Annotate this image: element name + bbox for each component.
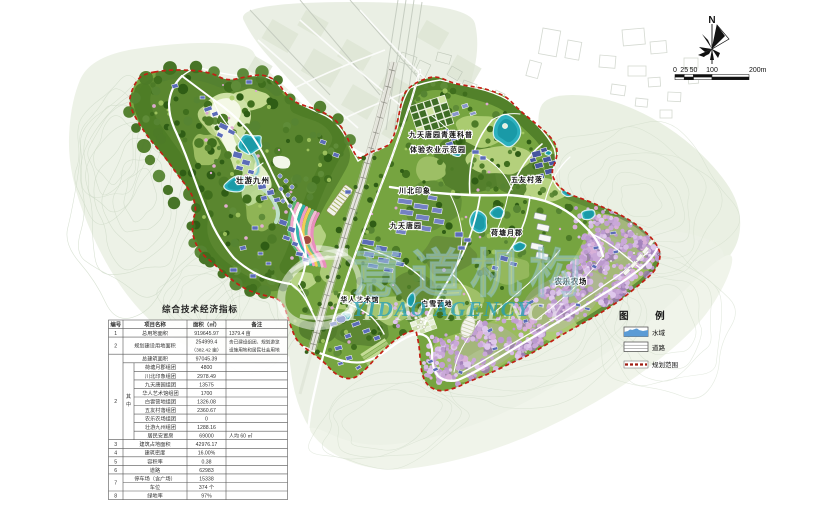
svg-text:道路: 道路 [652,343,666,352]
svg-text:13575: 13575 [199,382,214,388]
svg-text:97%: 97% [201,494,212,500]
svg-text:壮游九州: 壮游九州 [236,175,270,185]
svg-text:总用地面积: 总用地面积 [142,329,168,337]
svg-text:华人艺术馆组团: 华人艺术馆组团 [142,389,178,397]
svg-text:8: 8 [114,494,117,500]
svg-text:建筑密度: 建筑密度 [145,449,166,457]
svg-text:规划范围: 规划范围 [652,360,678,369]
svg-text:面积（㎡）: 面积（㎡） [193,321,220,329]
svg-text:6: 6 [114,468,117,474]
svg-text:意道机构: 意道机构 [352,246,588,304]
svg-text:42976.17: 42976.17 [196,442,218,448]
svg-text:25: 25 [680,67,688,74]
svg-text:车位: 车位 [150,483,160,491]
svg-text:4: 4 [114,451,117,457]
svg-text:五友村落组团: 五友村落组团 [145,406,176,414]
svg-text:3: 3 [114,442,117,448]
svg-text:（382.42 亩）: （382.42 亩） [191,347,221,354]
svg-text:总建筑面积: 总建筑面积 [142,355,168,363]
svg-text:九天唐园组团: 九天唐园组团 [145,380,176,388]
svg-text:道路: 道路 [150,466,161,474]
svg-text:水域: 水域 [652,328,666,337]
svg-text:5: 5 [114,459,117,465]
svg-text:含已建设组团、规划游览: 含已建设组团、规划游览 [229,339,280,346]
svg-text:16.00%: 16.00% [198,451,216,457]
svg-text:停车场（含广场）: 停车场（含广场） [134,474,176,482]
svg-text:五友村落: 五友村落 [511,175,543,184]
svg-text:1379.4 亩: 1379.4 亩 [229,330,251,337]
svg-text:2360.67: 2360.67 [197,408,216,414]
svg-text:绿地率: 绿地率 [147,492,163,500]
svg-text:50: 50 [690,67,698,74]
svg-text:0: 0 [205,417,208,423]
svg-text:1: 1 [114,331,117,337]
svg-text:壮游九州组团: 壮游九州组团 [145,423,176,431]
svg-text:4800: 4800 [201,365,213,371]
svg-text:其: 其 [126,394,131,400]
svg-text:编号: 编号 [110,321,121,329]
svg-text:2978.49: 2978.49 [197,374,216,380]
svg-text:备注: 备注 [250,321,262,329]
svg-text:农乐农场组团: 农乐农场组团 [145,415,176,423]
svg-text:建筑占地面积: 建筑占地面积 [139,440,170,448]
svg-text:九天唐园: 九天唐园 [389,221,422,230]
svg-text:中: 中 [126,401,131,408]
svg-text:100: 100 [706,67,718,74]
svg-text:254999.4: 254999.4 [196,340,218,346]
svg-text:图 例: 图 例 [619,310,677,322]
svg-text:2: 2 [114,344,117,350]
svg-text:1700: 1700 [201,391,213,397]
svg-text:97045.39: 97045.39 [196,357,218,363]
svg-text:规划建设用地面积: 规划建设用地面积 [134,342,176,350]
svg-text:居民安置房: 居民安置房 [148,432,174,440]
svg-text:1326.08: 1326.08 [197,399,216,405]
svg-text:919645.97: 919645.97 [194,331,219,337]
svg-text:设施用地和居民社会用地: 设施用地和居民社会用地 [229,347,280,354]
svg-text:0.38: 0.38 [201,459,211,465]
svg-text:荷塘月郡: 荷塘月郡 [490,228,523,237]
svg-text:2: 2 [114,399,117,405]
svg-text:综合技术经济指标: 综合技术经济指标 [162,304,238,314]
svg-text:川北印象: 川北印象 [398,186,431,195]
svg-text:0: 0 [673,67,677,74]
svg-text:7: 7 [114,481,117,487]
svg-text:200m: 200m [749,67,767,74]
svg-text:体验农业示范园: 体验农业示范园 [410,145,466,154]
svg-text:白雲营地组团: 白雲营地组团 [145,397,176,405]
svg-text:374 个: 374 个 [199,484,215,491]
svg-text:九天唐园青莲科普: 九天唐园青莲科普 [408,130,473,139]
svg-text:69000: 69000 [199,434,214,440]
svg-text:YIDAO AGENCY: YIDAO AGENCY [353,297,532,321]
svg-text:容积率: 容积率 [147,457,163,465]
svg-text:川北印象组团: 川北印象组团 [145,372,176,380]
svg-text:荷塘月郡组团: 荷塘月郡组团 [145,363,176,371]
svg-text:15338: 15338 [199,476,214,482]
svg-text:1288.16: 1288.16 [197,425,216,431]
svg-text:62983: 62983 [199,468,214,474]
svg-text:人均 60 ㎡: 人均 60 ㎡ [229,433,252,440]
svg-text:项目名称: 项目名称 [144,321,166,329]
